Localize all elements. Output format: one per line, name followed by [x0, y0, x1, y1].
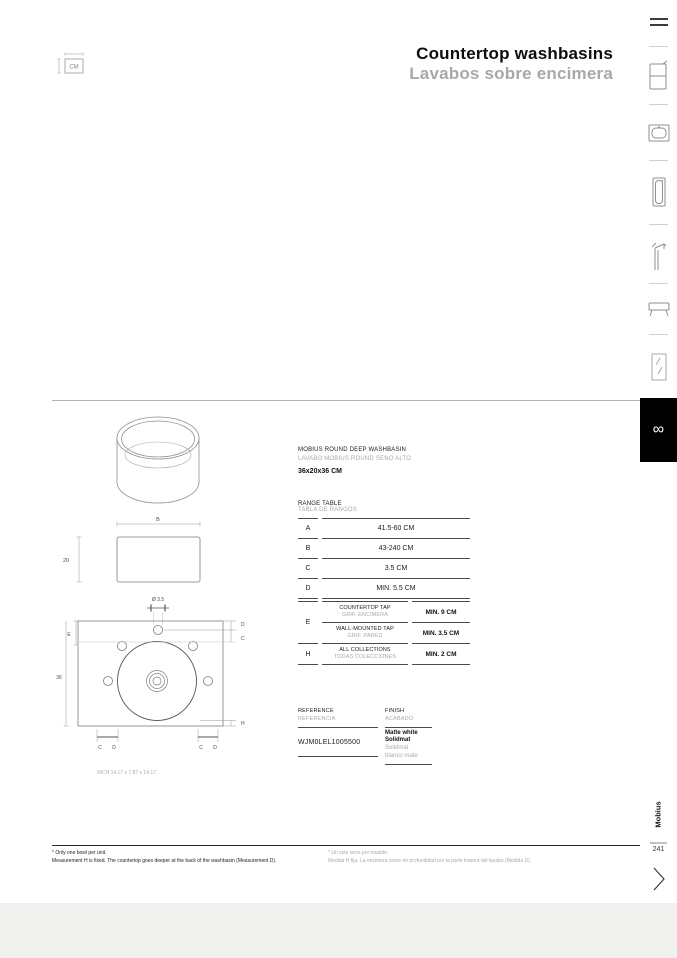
detail-row-value: MIN. 3.5 CM [412, 623, 470, 644]
page-number-divider [650, 842, 667, 844]
finish-name-en: Solidmat [385, 737, 432, 745]
tap-icon [648, 240, 670, 272]
collection-tab-mobius[interactable]: ∞ [640, 398, 677, 462]
divider [385, 764, 432, 765]
bottom-left-d-label: D [112, 745, 116, 751]
sidebar-separator [649, 283, 668, 284]
detail-row-desc: COUNTERTOP TAP GRIF. ENCIMERA [322, 601, 408, 623]
range-row-value: MIN. 5.5 CM [322, 579, 470, 599]
page-title-en: Countertop washbasins [409, 44, 613, 64]
footnote-en: * Only one bowl per unit. Measurement H … [52, 849, 317, 865]
countertop-washbasin-icon [647, 122, 671, 144]
sidebar-item-mirror[interactable] [640, 352, 677, 382]
sidebar-item-console[interactable] [640, 300, 677, 317]
cm-unit-label: CM [69, 65, 78, 71]
bottom-margin-strip [0, 903, 677, 958]
product-name-en: MOBIUS ROUND DEEP WASHBASIN [298, 446, 411, 455]
footnote-es-line1: * Un solo seno por mueble. [328, 849, 628, 857]
reference-label-en: REFERENCE [298, 707, 378, 715]
front-width-label: B [156, 517, 160, 523]
vanity-cabinet-icon [647, 60, 671, 92]
cm-unit-icon: CM [55, 50, 93, 82]
sidebar-separator [649, 334, 668, 335]
product-info: MOBIUS ROUND DEEP WASHBASIN LAVABO MOBIU… [298, 446, 411, 478]
finish-name-en: Matte white [385, 730, 432, 738]
range-table-title-es: TABLA DE RANGOS [298, 507, 470, 513]
footnote-es-line2: Medida H fija. La encimera crece en prof… [328, 857, 628, 865]
plan-depth-label: 36 [56, 675, 62, 681]
finish-name-es: Solidmat [385, 745, 432, 753]
collection-name-vertical: Mobius [640, 790, 677, 838]
sidebar-item-tap[interactable] [640, 240, 677, 272]
sidebar-separator [649, 104, 668, 105]
sidebar-item-countertop-washbasin[interactable] [640, 122, 677, 144]
sidebar-item-vanity-cabinet[interactable] [640, 60, 677, 92]
page-title-es: Lavabos sobre encimera [409, 64, 613, 84]
basin-3d-view [117, 417, 199, 503]
detail-row-key: H [298, 644, 318, 665]
product-name-es: LAVABO MOBIUS ROUND SENO ALTO [298, 455, 411, 464]
range-table: RANGE TABLE TABLA DE RANGOS A 41.5-60 CM… [298, 501, 470, 665]
footnote-divider [52, 845, 640, 846]
hole-diameter-dim [147, 605, 169, 612]
menu-icon [649, 16, 669, 30]
reference-label-es: REFERENCIA [298, 715, 378, 723]
page-number: 241 [640, 846, 677, 853]
product-size: 36x20x36 CM [298, 467, 411, 477]
divider [298, 756, 378, 757]
plan-h-label: H [241, 721, 245, 727]
sidebar-item-pedestal-washbasin[interactable] [640, 176, 677, 208]
reference-block: REFERENCE REFERENCIA WJM0LEL1005500 [298, 707, 378, 757]
detail-row-value: MIN. 9 CM [412, 601, 470, 623]
range-row-key: B [298, 539, 318, 559]
sidebar-item-menu[interactable] [640, 16, 677, 30]
sidebar-separator [649, 224, 668, 225]
footnote-es: * Un solo seno por mueble. Medida H fija… [328, 849, 628, 865]
catalog-page: CM Countertop washbasins Lavabos sobre e… [0, 0, 677, 958]
range-row-key: D [298, 579, 318, 599]
plan-e-label: E [67, 632, 71, 638]
finish-label-en: FINISH [385, 707, 432, 715]
range-row-key: C [298, 559, 318, 579]
plan-d-label: D [241, 622, 245, 628]
range-row-value: 43-240 CM [322, 539, 470, 559]
bottom-right-c-label: C [199, 745, 203, 751]
sidebar-separator [649, 160, 668, 161]
mobius-infinity-logo: ∞ [653, 422, 664, 438]
detail-row-key: E [298, 601, 318, 644]
detail-row-desc: ALL COLLECTIONS TODAS COLECCIONES [322, 644, 408, 665]
chevron-right-icon [651, 864, 667, 894]
range-row-key: A [298, 518, 318, 539]
finish-name-es: blanco mate [385, 753, 432, 761]
finish-label-es: ACABADO [385, 715, 432, 723]
range-row-value: 3.5 CM [322, 559, 470, 579]
front-dimensions [77, 522, 201, 583]
category-sidebar: ∞ Mobius 241 [640, 0, 677, 958]
footnote-en-line1: * Only one bowl per unit. [52, 849, 317, 857]
next-page-button[interactable] [640, 864, 677, 894]
section-divider [52, 400, 640, 401]
technical-drawing: B 20 Ø 3.5 [50, 405, 300, 790]
reference-code: WJM0LEL1005500 [298, 728, 378, 756]
hole-diameter-label: Ø 3.5 [152, 597, 164, 603]
bottom-left-c-label: C [98, 745, 102, 751]
front-height-label: 20 [63, 558, 69, 564]
console-icon [646, 300, 672, 317]
detail-row-desc: WALL-MOUNTED TAP GRIF. PARED [322, 623, 408, 644]
finish-block: FINISH ACABADO Matte white Solidmat Soli… [385, 707, 432, 765]
inch-conversion-note: INCH 14.17 x 7.87 x 14.17 [97, 770, 156, 776]
range-row-value: 41.5-60 CM [322, 518, 470, 539]
pedestal-washbasin-icon [650, 176, 668, 208]
plan-c-label: C [241, 636, 245, 642]
page-title: Countertop washbasins Lavabos sobre enci… [409, 44, 613, 83]
sidebar-separator [649, 46, 668, 47]
bottom-right-d-label: D [213, 745, 217, 751]
basin-plan-view [78, 621, 223, 726]
detail-row-value: MIN. 2 CM [412, 644, 470, 665]
basin-front-view [117, 537, 200, 582]
footnote-en-line2: Measurement H is fixed. The countertop g… [52, 857, 317, 865]
mirror-icon [649, 352, 669, 382]
